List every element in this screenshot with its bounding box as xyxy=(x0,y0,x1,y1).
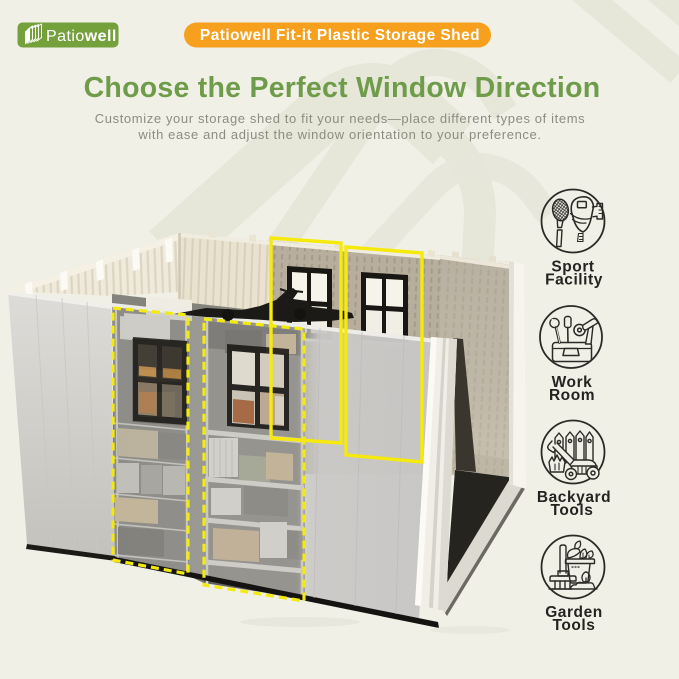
svg-text:Patiowell: Patiowell xyxy=(46,28,117,45)
svg-text:Patiowell Fit-it Plastic Stora: Patiowell Fit-it Plastic Storage Shed xyxy=(200,27,480,44)
svg-text:Customize your storage shed to: Customize your storage shed to fit your … xyxy=(95,111,586,126)
svg-text:Choose the Perfect Window Dire: Choose the Perfect Window Direction xyxy=(84,72,601,104)
svg-text:Room: Room xyxy=(549,387,595,404)
svg-text:Tools: Tools xyxy=(551,502,594,519)
svg-text:Facility: Facility xyxy=(545,272,603,289)
svg-text:with ease and adjust the windo: with ease and adjust the window orientat… xyxy=(137,127,541,142)
svg-text:Tools: Tools xyxy=(553,617,596,634)
